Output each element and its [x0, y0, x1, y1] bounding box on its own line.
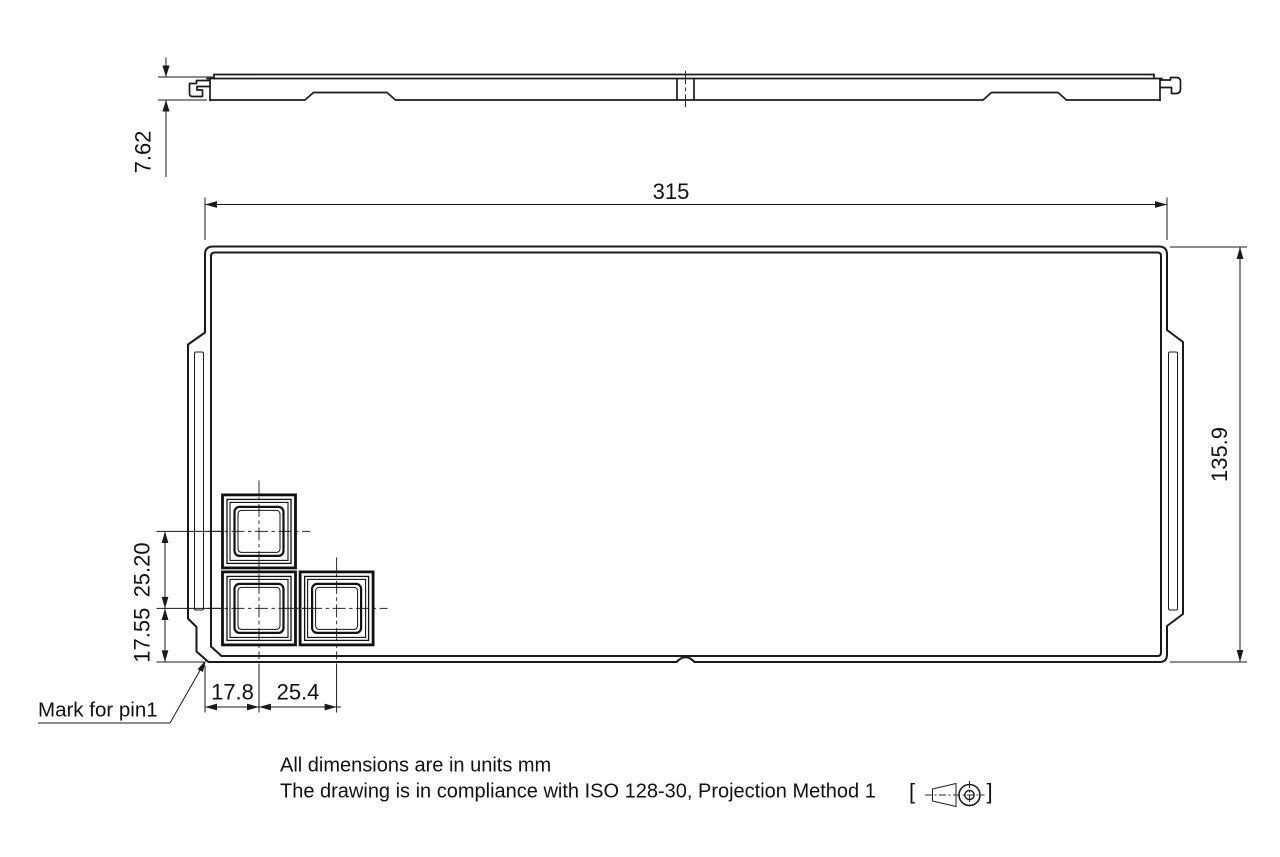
front-view: 315 135.9 25.20 17.55 [38, 179, 1247, 723]
dim-width: 315 [205, 179, 1167, 240]
arrowhead [1237, 247, 1244, 259]
dim-pad-horizontal: 17.8 25.4 [205, 664, 341, 713]
dim-thickness: 7.62 [131, 58, 215, 178]
projection-method-symbol: [ ] [909, 779, 993, 809]
drawing-sheet: 7.62 [0, 0, 1280, 857]
arrowhead [162, 531, 169, 543]
bracket-open: [ [909, 779, 915, 804]
dim-pad-pitch-vertical: 25.20 [130, 531, 222, 608]
note-compliance: The drawing is in compliance with ISO 12… [280, 781, 876, 803]
profile-left-hook [190, 81, 211, 97]
profile-right-hook [1160, 78, 1181, 94]
left-rail-slot [195, 352, 204, 610]
arrowhead [1155, 201, 1167, 208]
arrowhead [162, 650, 169, 662]
dim-pad-bottom-offset: 17.55 [130, 608, 205, 663]
dim-height: 135.9 [1170, 247, 1247, 662]
arrowhead [162, 66, 169, 78]
pin1-label: Mark for pin1 [38, 699, 158, 722]
side-profile-view: 7.62 [131, 58, 1181, 178]
arrowhead [325, 704, 337, 711]
dim-height-label: 135.9 [1207, 427, 1232, 482]
arrowhead [259, 704, 271, 711]
bracket-close: ] [987, 779, 993, 804]
arrowhead [162, 597, 169, 609]
arrowhead [205, 704, 217, 711]
note-units: All dimensions are in units mm [280, 755, 551, 777]
board-outer-outline [188, 247, 1183, 663]
arrowhead [205, 201, 217, 208]
notes: All dimensions are in units mm The drawi… [280, 755, 993, 810]
arrowhead [162, 100, 169, 112]
arrowhead [162, 608, 169, 620]
board-inner-outline [211, 253, 1161, 657]
dim-pad-bottom-offset-label: 17.55 [130, 608, 155, 663]
pin1-callout: Mark for pin1 [38, 660, 206, 723]
leader-line [170, 663, 205, 724]
dim-pad-pitch-vertical-label: 25.20 [130, 542, 155, 597]
pad-square-bottom-right [286, 557, 388, 659]
arrowhead [247, 704, 259, 711]
dim-pad-left-offset-label: 17.8 [211, 680, 254, 705]
dim-width-label: 315 [653, 179, 690, 204]
dim-pad-pitch-horizontal-label: 25.4 [277, 680, 320, 705]
dim-thickness-label: 7.62 [131, 131, 156, 174]
arrowhead [1237, 650, 1244, 662]
right-rail-slot [1169, 352, 1178, 610]
technical-drawing: 7.62 [0, 0, 1280, 857]
